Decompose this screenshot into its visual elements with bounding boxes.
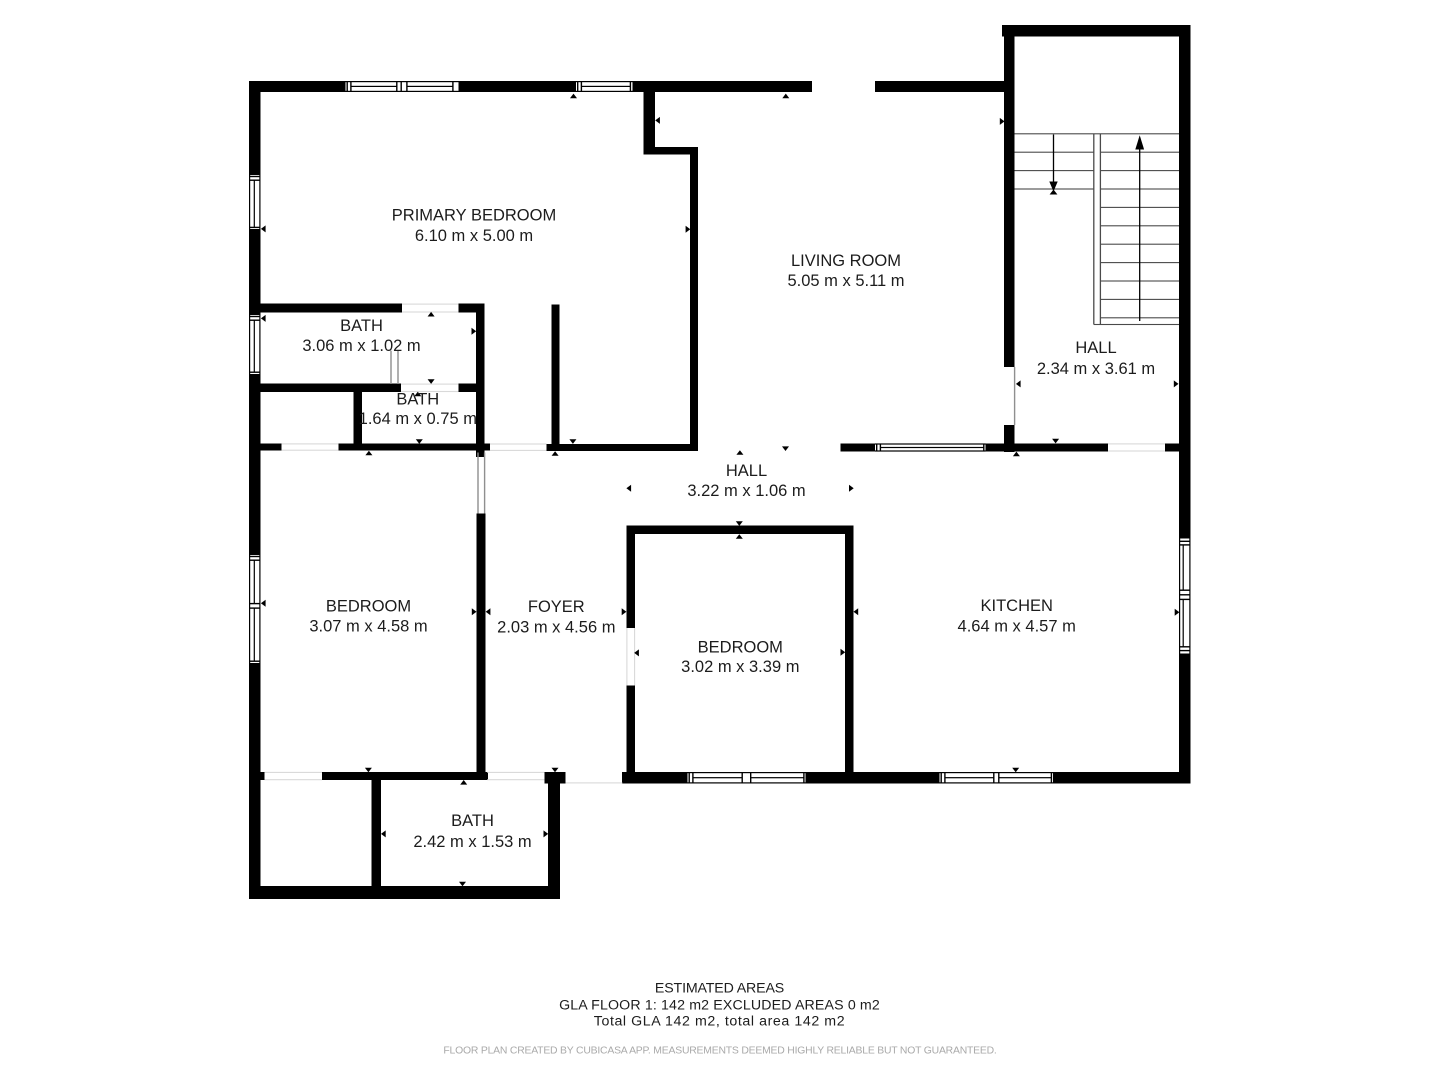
svg-text:3.06 m x 1.02 m: 3.06 m x 1.02 m [302, 337, 420, 355]
svg-text:BATH: BATH [396, 390, 439, 408]
svg-text:3.07 m x 4.58 m: 3.07 m x 4.58 m [309, 618, 427, 636]
svg-text:FLOOR PLAN CREATED BY CUBICASA: FLOOR PLAN CREATED BY CUBICASA APP. MEAS… [443, 1045, 996, 1056]
svg-text:GLA FLOOR 1: 142 m2 EXCLUDED A: GLA FLOOR 1: 142 m2 EXCLUDED AREAS 0 m2 [559, 998, 880, 1014]
svg-text:6.10 m x 5.00 m: 6.10 m x 5.00 m [415, 227, 533, 245]
svg-text:FOYER: FOYER [528, 598, 585, 616]
svg-text:2.34 m x 3.61 m: 2.34 m x 3.61 m [1037, 360, 1155, 378]
svg-text:BATH: BATH [451, 812, 494, 830]
svg-text:BATH: BATH [340, 317, 383, 335]
svg-text:KITCHEN: KITCHEN [980, 597, 1052, 615]
svg-text:Total GLA 142 m2, total area 1: Total GLA 142 m2, total area 142 m2 [594, 1013, 845, 1029]
svg-text:BEDROOM: BEDROOM [698, 639, 783, 657]
svg-text:3.22 m x 1.06 m: 3.22 m x 1.06 m [687, 482, 805, 500]
svg-text:2.03 m x 4.56 m: 2.03 m x 4.56 m [497, 618, 615, 636]
svg-text:BEDROOM: BEDROOM [326, 598, 411, 616]
svg-text:HALL: HALL [726, 462, 767, 480]
svg-text:3.02 m x 3.39 m: 3.02 m x 3.39 m [681, 658, 799, 676]
svg-text:1.64 m x 0.75 m: 1.64 m x 0.75 m [359, 410, 477, 428]
svg-text:4.64 m x 4.57 m: 4.64 m x 4.57 m [958, 618, 1076, 636]
svg-text:PRIMARY BEDROOM: PRIMARY BEDROOM [392, 207, 556, 225]
svg-text:2.42 m x 1.53 m: 2.42 m x 1.53 m [413, 833, 531, 851]
svg-text:ESTIMATED AREAS: ESTIMATED AREAS [655, 980, 784, 996]
svg-text:LIVING ROOM: LIVING ROOM [791, 252, 901, 270]
svg-text:5.05 m x 5.11 m: 5.05 m x 5.11 m [787, 272, 904, 290]
svg-text:HALL: HALL [1075, 339, 1116, 357]
